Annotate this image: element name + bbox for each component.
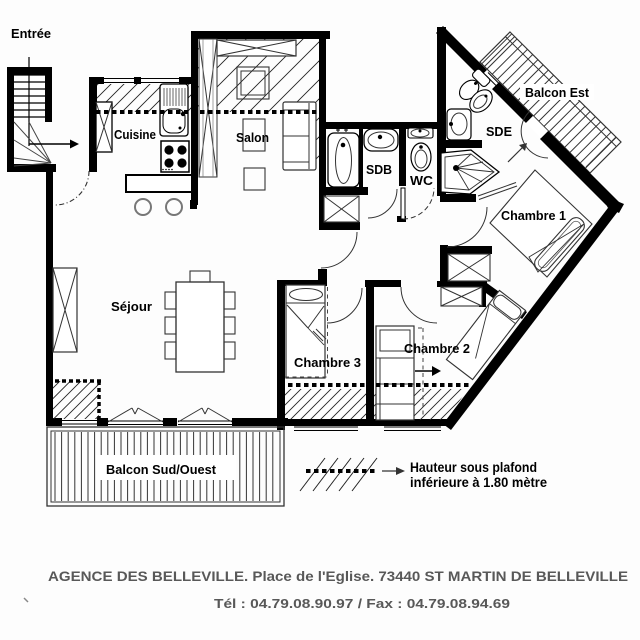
svg-text:Entrée: Entrée xyxy=(11,26,51,41)
svg-text:SDE: SDE xyxy=(486,124,512,139)
svg-text:Hauteur sous plafond: Hauteur sous plafond xyxy=(410,460,537,475)
svg-text:Chambre 1: Chambre 1 xyxy=(501,208,566,223)
svg-text:Balcon Sud/Ouest: Balcon Sud/Ouest xyxy=(106,462,217,477)
svg-text:inférieure à 1.80 mètre: inférieure à 1.80 mètre xyxy=(410,475,547,490)
svg-text:Salon: Salon xyxy=(236,130,269,145)
svg-text:Séjour: Séjour xyxy=(111,299,152,314)
svg-text:AGENCE DES BELLEVILLE. Place d: AGENCE DES BELLEVILLE. Place de l'Eglise… xyxy=(48,568,628,584)
svg-text:WC: WC xyxy=(410,173,434,188)
svg-text:Tél : 04.79.08.90.97 / Fax : 0: Tél : 04.79.08.90.97 / Fax : 04.79.08.94… xyxy=(214,596,510,611)
svg-text:SDB: SDB xyxy=(366,162,392,177)
svg-text:Balcon Est: Balcon Est xyxy=(525,85,590,100)
svg-text:Chambre 3: Chambre 3 xyxy=(294,355,361,370)
svg-text:Cuisine: Cuisine xyxy=(114,127,156,142)
svg-text:Chambre 2: Chambre 2 xyxy=(404,341,470,356)
